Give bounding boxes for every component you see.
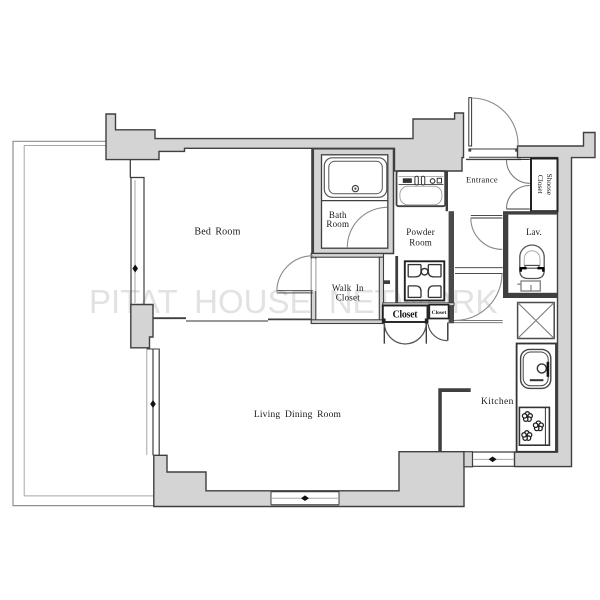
svg-text:Lav.: Lav. [526,227,542,237]
svg-text:Shoose: Shoose [545,174,554,196]
svg-text:Room: Room [326,219,349,229]
svg-text:Closet: Closet [336,293,361,303]
svg-text:Living Dining Room: Living Dining Room [254,410,342,420]
svg-text:Kitchen: Kitchen [481,397,514,407]
svg-text:Bed Room: Bed Room [194,227,240,238]
svg-text:Closet: Closet [432,310,447,316]
svg-text:Closet: Closet [392,309,418,320]
svg-text:Powder: Powder [406,227,435,237]
svg-text:Room: Room [409,238,432,248]
svg-text:Entrance: Entrance [466,175,498,185]
svg-text:Closet: Closet [536,175,545,195]
